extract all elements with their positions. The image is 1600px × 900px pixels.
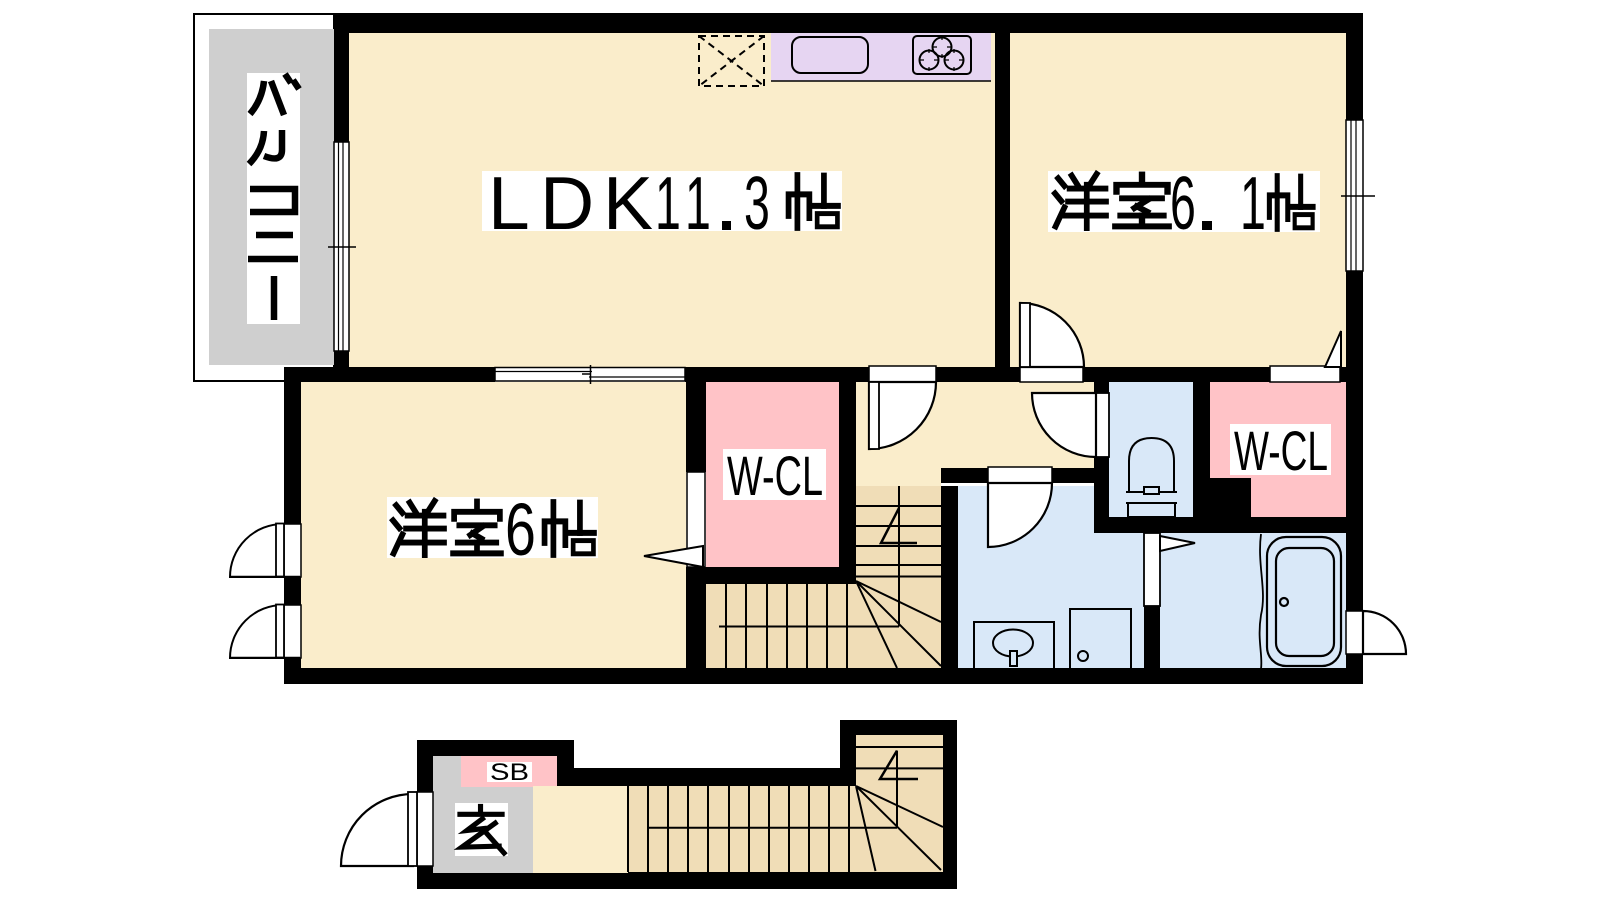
- svg-text:W-CL: W-CL: [1234, 419, 1328, 482]
- svg-text:6: 6: [1170, 163, 1196, 246]
- svg-text:1: 1: [1240, 163, 1266, 246]
- svg-text:1: 1: [655, 163, 681, 246]
- svg-text:SB: SB: [490, 759, 529, 786]
- svg-text:D: D: [540, 161, 594, 245]
- svg-text:3: 3: [744, 163, 770, 246]
- svg-text:L: L: [488, 161, 530, 245]
- svg-text:6: 6: [505, 488, 536, 571]
- svg-text:1: 1: [685, 163, 711, 246]
- svg-text:W-CL: W-CL: [727, 444, 823, 507]
- svg-text:K: K: [603, 161, 653, 245]
